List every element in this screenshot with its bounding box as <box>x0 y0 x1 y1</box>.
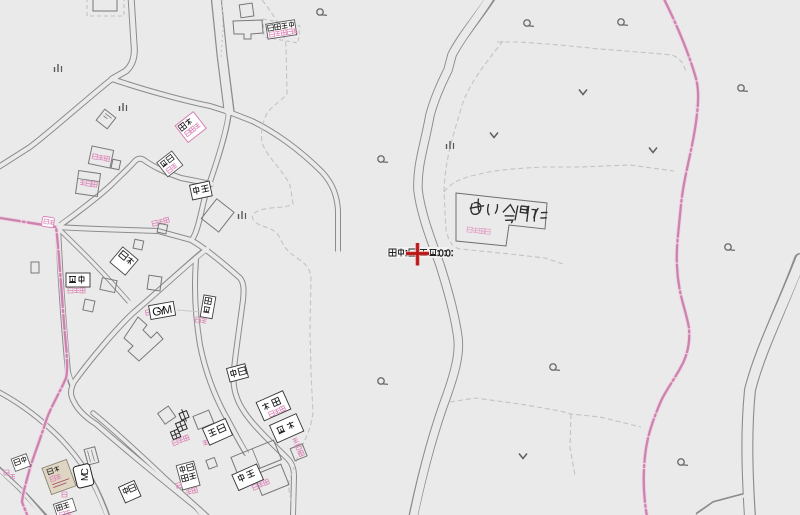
svg-text:MC: MC <box>80 468 91 481</box>
